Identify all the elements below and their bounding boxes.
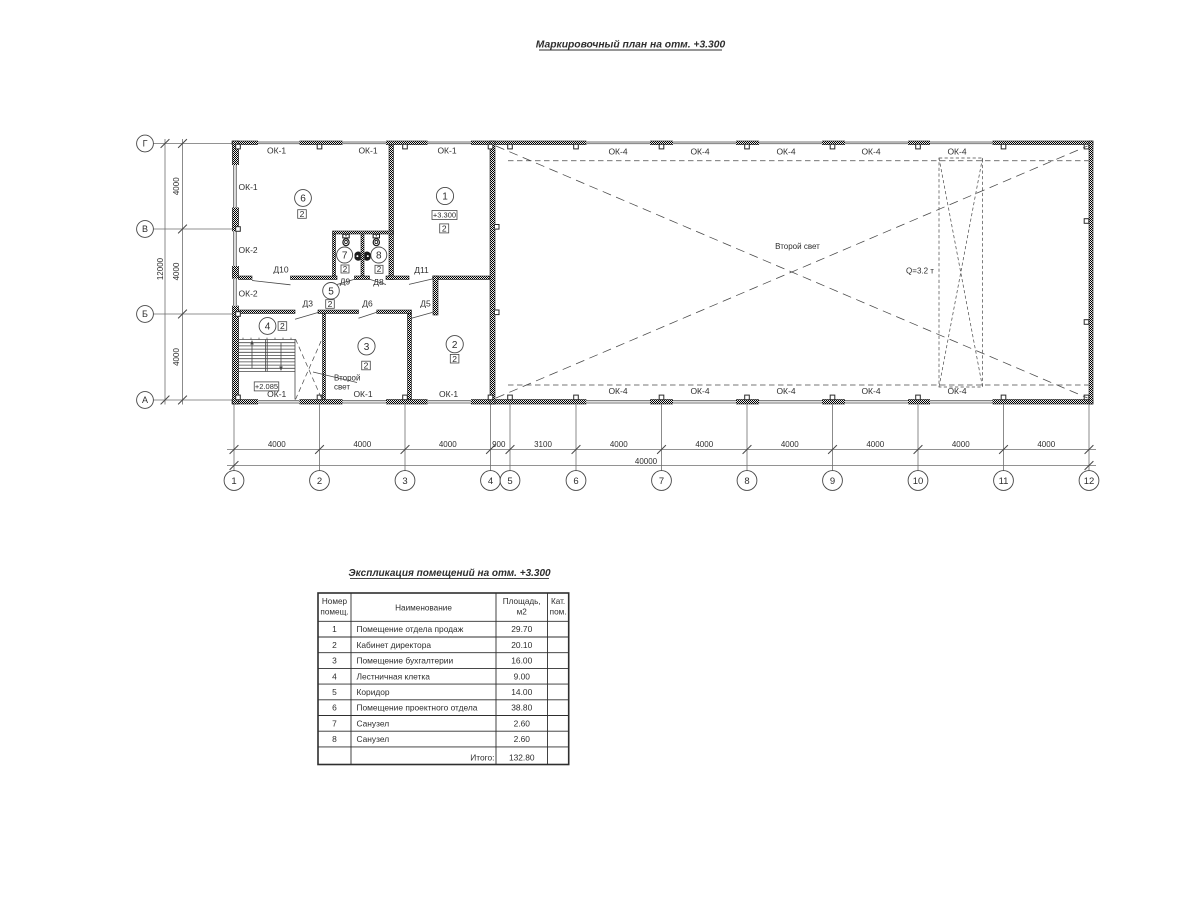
svg-text:Кат.: Кат. [551, 597, 565, 606]
svg-text:2: 2 [343, 265, 348, 274]
svg-text:2: 2 [280, 321, 285, 331]
svg-text:Итого:: Итого: [470, 753, 494, 763]
svg-text:2: 2 [317, 476, 322, 487]
svg-text:7: 7 [659, 476, 664, 487]
svg-text:Д5: Д5 [420, 298, 431, 308]
svg-text:5: 5 [328, 286, 334, 297]
svg-text:4000: 4000 [695, 440, 713, 449]
svg-text:12000: 12000 [156, 257, 165, 280]
svg-text:ОК-1: ОК-1 [267, 146, 286, 156]
svg-text:4000: 4000 [172, 177, 181, 195]
svg-text:900: 900 [492, 440, 506, 449]
svg-text:4000: 4000 [610, 440, 628, 449]
svg-text:9.00: 9.00 [514, 671, 531, 681]
svg-text:1: 1 [231, 476, 236, 487]
svg-text:5: 5 [507, 476, 512, 487]
svg-text:1: 1 [332, 624, 337, 634]
svg-text:2: 2 [452, 340, 458, 351]
svg-text:Коридор: Коридор [357, 687, 390, 697]
svg-text:Маркировочный план на отм. +3.: Маркировочный план на отм. +3.300 [536, 39, 726, 50]
svg-text:Санузел: Санузел [357, 734, 390, 744]
svg-text:4000: 4000 [353, 440, 371, 449]
svg-text:38.80: 38.80 [511, 703, 532, 713]
svg-text:2: 2 [377, 265, 382, 274]
svg-text:4: 4 [332, 671, 337, 681]
svg-text:12: 12 [1084, 476, 1095, 487]
svg-text:Наименование: Наименование [395, 604, 452, 613]
svg-text:Д3: Д3 [303, 299, 314, 309]
svg-text:4000: 4000 [952, 440, 970, 449]
svg-text:2: 2 [300, 209, 305, 219]
svg-text:Санузел: Санузел [357, 718, 390, 728]
svg-text:+3.300: +3.300 [433, 211, 456, 220]
svg-text:ОК-4: ОК-4 [947, 386, 966, 396]
svg-text:ОК-1: ОК-1 [439, 389, 458, 399]
svg-text:Помещение проектного отдела: Помещение проектного отдела [357, 703, 478, 713]
svg-text:40000: 40000 [635, 457, 658, 466]
svg-text:2: 2 [328, 299, 333, 309]
svg-text:6: 6 [573, 476, 578, 487]
svg-text:2.60: 2.60 [514, 734, 531, 744]
svg-text:+2.085: +2.085 [255, 382, 278, 391]
svg-text:Номер: Номер [322, 597, 348, 606]
svg-text:Д10: Д10 [273, 265, 288, 275]
svg-text:6: 6 [332, 703, 337, 713]
svg-text:4000: 4000 [781, 440, 799, 449]
svg-text:5: 5 [332, 687, 337, 697]
svg-text:Б: Б [142, 309, 148, 319]
svg-text:29.70: 29.70 [511, 624, 532, 634]
svg-text:Площадь,: Площадь, [503, 597, 541, 606]
svg-text:4000: 4000 [1037, 440, 1055, 449]
svg-text:9: 9 [830, 476, 835, 487]
svg-text:Помещение бухгалтерии: Помещение бухгалтерии [357, 656, 454, 666]
svg-text:ОК-4: ОК-4 [608, 386, 627, 396]
svg-text:4000: 4000 [866, 440, 884, 449]
svg-text:8: 8 [376, 251, 382, 262]
svg-text:ОК-1: ОК-1 [358, 146, 377, 156]
svg-text:4000: 4000 [439, 440, 457, 449]
svg-text:Д6: Д6 [362, 298, 373, 308]
svg-text:ОК-1: ОК-1 [239, 182, 258, 192]
svg-text:2.60: 2.60 [514, 718, 531, 728]
svg-text:11: 11 [999, 476, 1009, 487]
svg-text:10: 10 [913, 476, 924, 487]
svg-text:Кабинет директора: Кабинет директора [357, 640, 432, 650]
svg-text:Q=3.2 т: Q=3.2 т [906, 267, 934, 276]
svg-text:4: 4 [488, 476, 493, 487]
svg-text:8: 8 [332, 734, 337, 744]
svg-text:ОК-2: ОК-2 [239, 289, 258, 299]
svg-text:м2: м2 [517, 608, 528, 617]
svg-text:ОК-1: ОК-1 [437, 146, 456, 156]
svg-text:4000: 4000 [268, 440, 286, 449]
svg-text:пом.: пом. [550, 608, 567, 617]
svg-text:ОК-4: ОК-4 [861, 386, 880, 396]
svg-text:Д9: Д9 [340, 277, 351, 287]
svg-text:4000: 4000 [172, 348, 181, 366]
svg-text:помещ.: помещ. [320, 608, 348, 617]
svg-text:2: 2 [332, 640, 337, 650]
svg-text:3100: 3100 [534, 440, 552, 449]
svg-text:ОК-4: ОК-4 [861, 147, 880, 157]
svg-text:А: А [142, 395, 148, 405]
svg-text:1: 1 [442, 192, 448, 203]
svg-text:Экспликация помещений на отм.: Экспликация помещений на отм. +3.300 [348, 568, 551, 579]
svg-text:3: 3 [402, 476, 407, 487]
svg-text:4000: 4000 [172, 262, 181, 280]
svg-text:16.00: 16.00 [511, 656, 532, 666]
svg-text:ОК-4: ОК-4 [947, 147, 966, 157]
svg-text:20.10: 20.10 [511, 640, 532, 650]
svg-text:ОК-4: ОК-4 [690, 386, 709, 396]
svg-text:ОК-4: ОК-4 [776, 147, 795, 157]
svg-text:132.80: 132.80 [509, 753, 535, 763]
svg-text:ОК-4: ОК-4 [608, 147, 627, 157]
svg-text:3: 3 [332, 656, 337, 666]
svg-text:8: 8 [744, 476, 749, 487]
svg-text:2: 2 [452, 354, 457, 364]
svg-text:14.00: 14.00 [511, 687, 532, 697]
svg-text:ОК-4: ОК-4 [776, 386, 795, 396]
svg-text:7: 7 [332, 718, 337, 728]
svg-text:Г: Г [143, 139, 148, 149]
svg-text:Лестничная клетка: Лестничная клетка [357, 671, 431, 681]
svg-text:7: 7 [342, 251, 348, 262]
svg-text:Второй свет: Второй свет [775, 242, 820, 251]
svg-text:4: 4 [265, 322, 271, 333]
svg-text:ОК-1: ОК-1 [353, 389, 372, 399]
svg-text:В: В [142, 224, 148, 234]
svg-text:Д11: Д11 [414, 265, 429, 275]
svg-text:6: 6 [300, 194, 306, 205]
svg-text:ОК-2: ОК-2 [239, 245, 258, 255]
svg-text:ОК-4: ОК-4 [690, 147, 709, 157]
svg-text:2: 2 [442, 223, 447, 233]
svg-text:3: 3 [364, 342, 370, 353]
svg-text:Помещение отдела продаж: Помещение отдела продаж [357, 624, 464, 634]
svg-text:свет: свет [334, 383, 350, 392]
svg-text:2: 2 [364, 361, 369, 371]
